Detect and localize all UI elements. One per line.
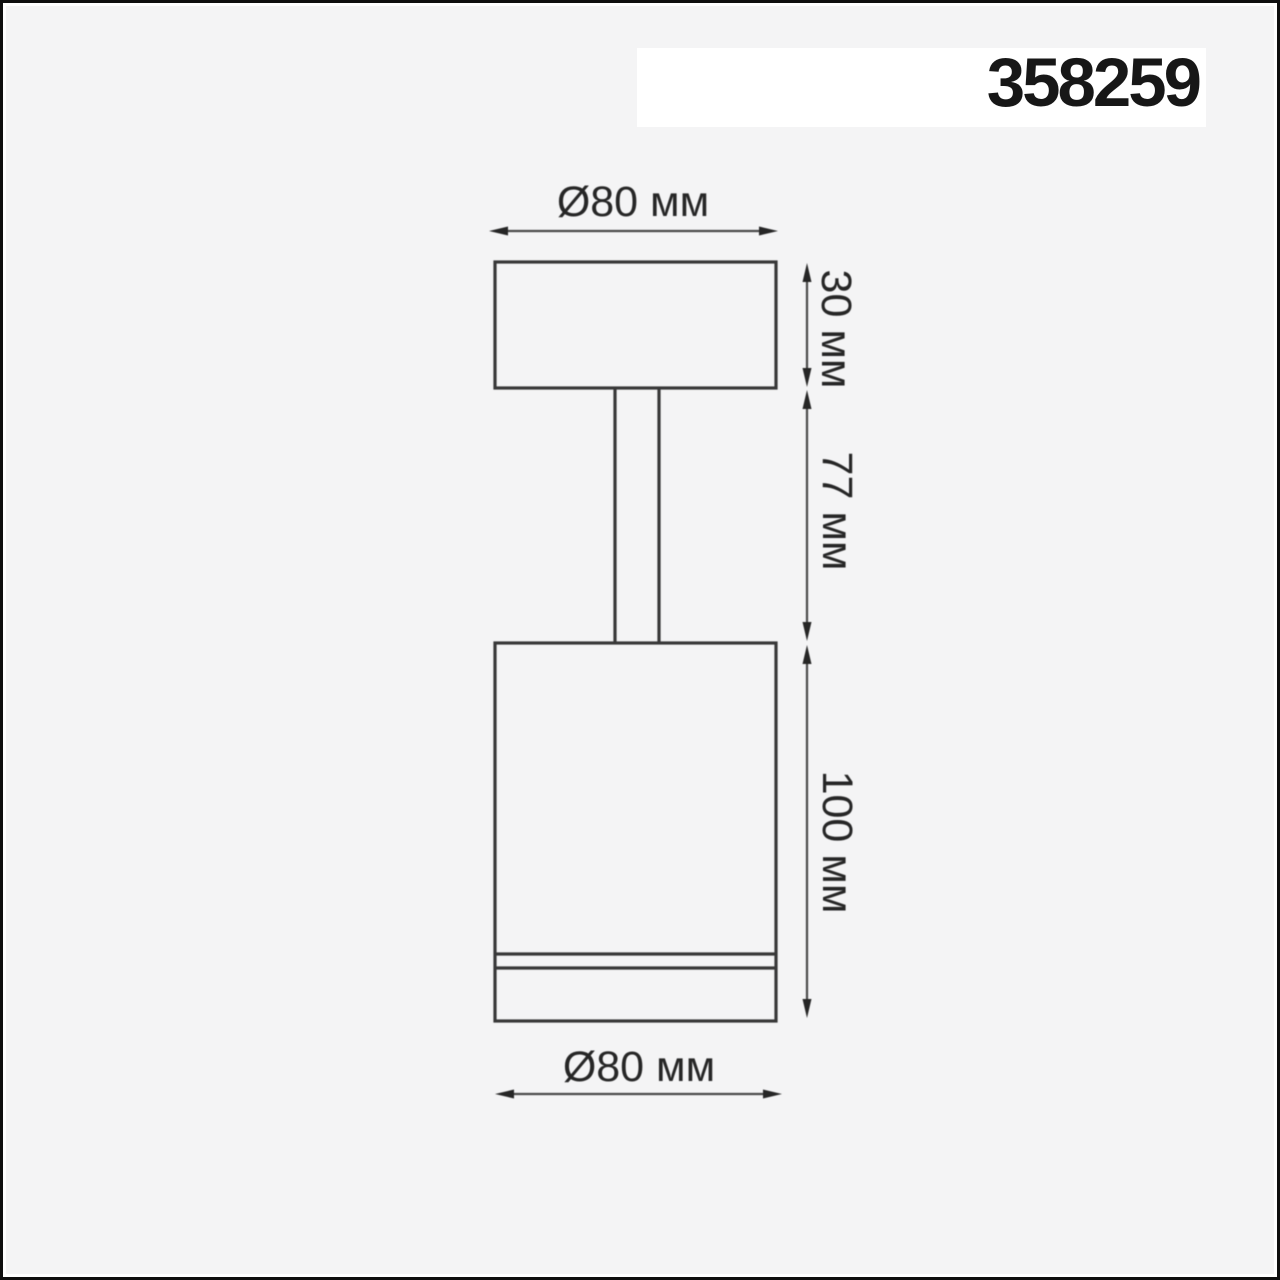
- svg-text:30 мм: 30 мм: [812, 270, 860, 389]
- svg-text:77 мм: 77 мм: [813, 452, 861, 571]
- svg-text:Ø80 мм: Ø80 мм: [563, 1043, 715, 1091]
- svg-text:Ø80 мм: Ø80 мм: [557, 178, 709, 226]
- svg-text:100 мм: 100 мм: [813, 771, 861, 914]
